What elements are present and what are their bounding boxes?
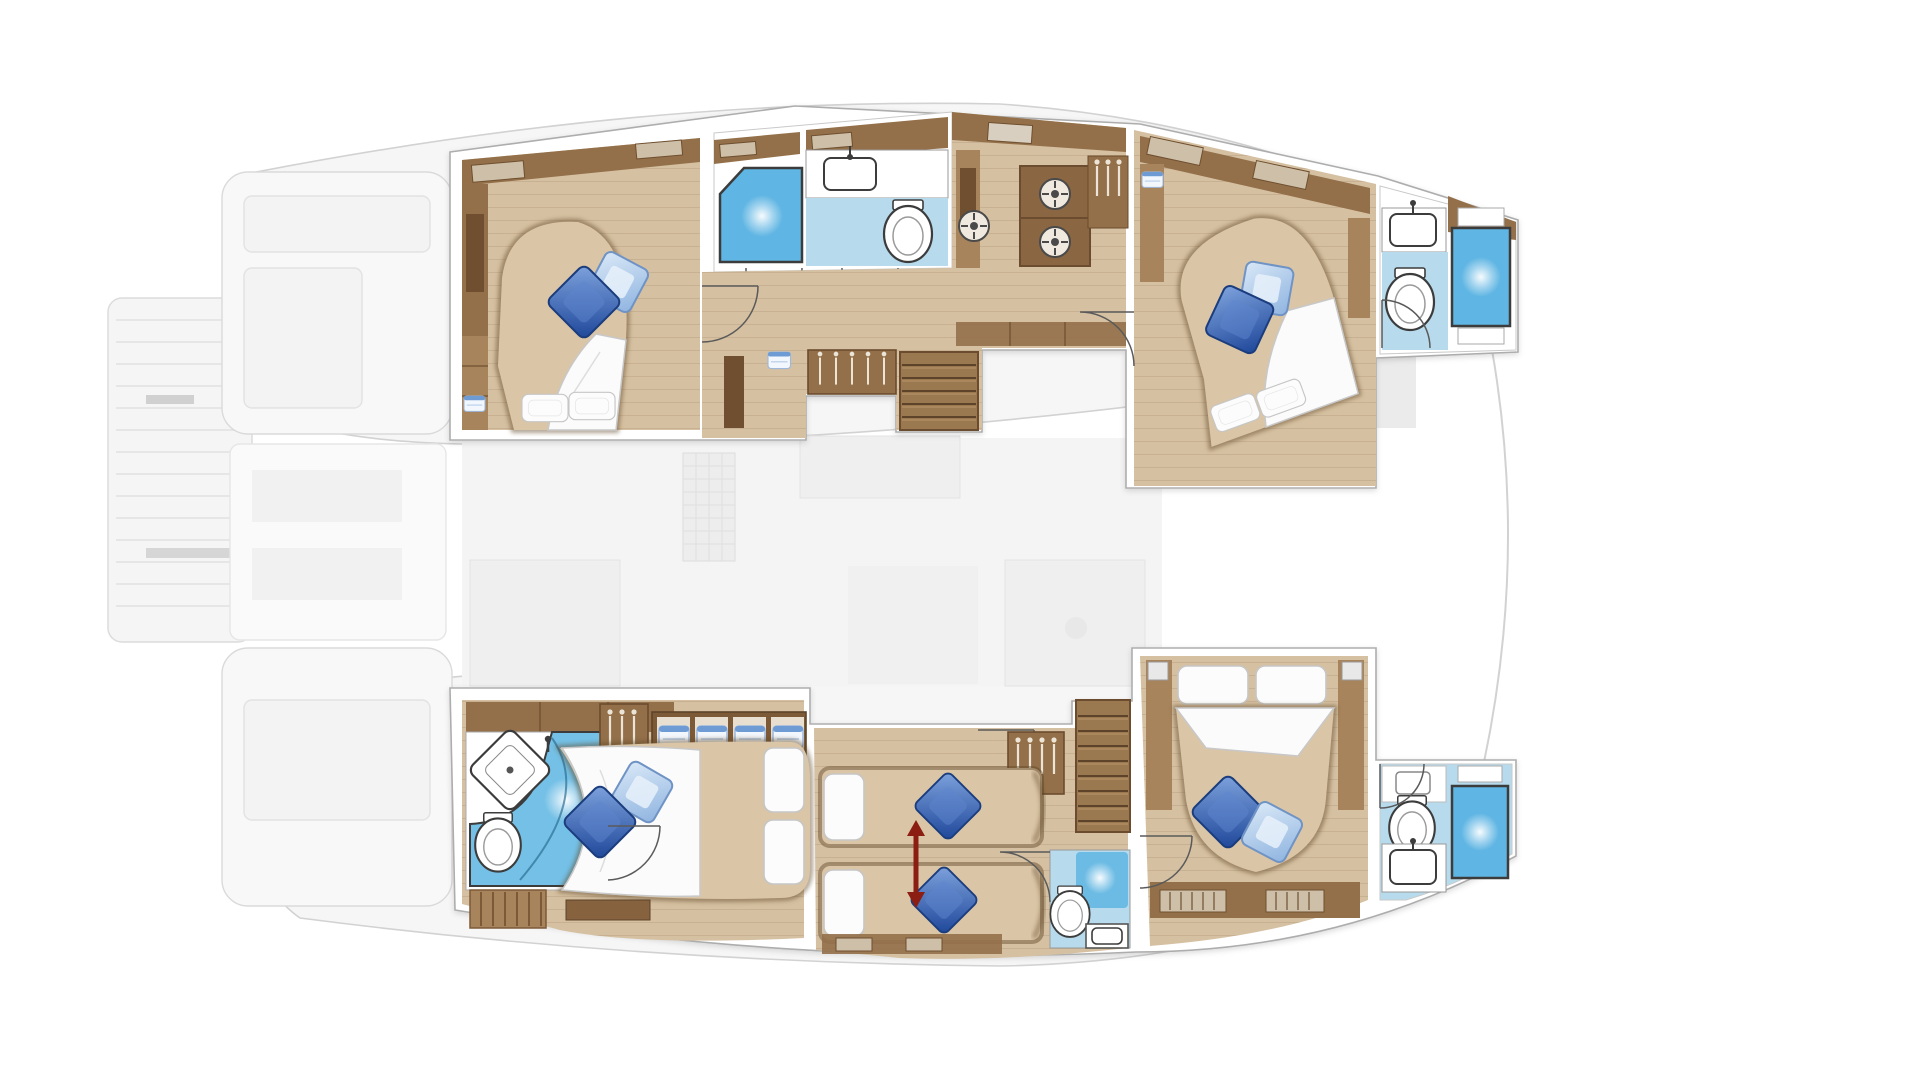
round-appliance xyxy=(1040,179,1070,209)
shower-curb xyxy=(1458,328,1504,344)
washbasin xyxy=(824,158,876,190)
shower-curb xyxy=(1458,208,1504,226)
hand-towel xyxy=(464,396,485,411)
ghost-aft-deck xyxy=(222,172,452,906)
speaker-box xyxy=(1342,662,1362,680)
floor-plan-page xyxy=(0,0,1920,1080)
washbasin xyxy=(1390,214,1436,246)
room-bottom-fwd-cabin xyxy=(1140,656,1368,946)
cockpit-grate-table xyxy=(683,453,735,561)
white-pillow xyxy=(764,820,804,884)
floor-plan-canvas xyxy=(0,0,1920,1080)
washbasin xyxy=(1390,850,1436,884)
side-column xyxy=(1146,660,1172,810)
teak-shower-mat xyxy=(470,890,546,928)
shower-curb xyxy=(1458,766,1502,782)
hanging-lockers-aft xyxy=(808,350,896,394)
towel xyxy=(1142,172,1163,187)
white-pillow xyxy=(1178,666,1248,704)
round-appliance xyxy=(959,211,989,241)
companionway-stairs-top xyxy=(900,352,978,430)
room-top-aft-cabin xyxy=(462,138,700,430)
towel-rail xyxy=(768,352,791,369)
corridor-post xyxy=(724,356,744,428)
side-column xyxy=(1338,660,1364,810)
white-pillow xyxy=(522,394,568,421)
single-bed-lower xyxy=(820,864,1043,942)
round-appliance xyxy=(1040,227,1070,257)
right-cabinet-column xyxy=(1348,218,1370,318)
single-bed-upper xyxy=(820,768,1043,846)
companionway-stairs-bottom xyxy=(1076,700,1130,832)
white-pillow xyxy=(764,748,804,812)
room-bottom-aft-cabin xyxy=(462,700,810,941)
under-bed-drawer xyxy=(566,900,650,920)
room-bottom-fwd-bathroom xyxy=(1380,764,1512,900)
lower-cabinet-band xyxy=(956,322,1126,346)
drawer-stack xyxy=(462,336,488,430)
white-pillow xyxy=(569,392,615,419)
white-pillow xyxy=(824,870,864,936)
storage-band xyxy=(822,934,1002,954)
double-bed xyxy=(560,742,810,899)
speaker-box xyxy=(1148,662,1168,680)
white-pillow xyxy=(1256,666,1326,704)
storage-band xyxy=(1150,882,1360,918)
room-top-fwd-bathroom xyxy=(1380,186,1516,354)
ghost-saloon xyxy=(462,436,1162,686)
white-pillow xyxy=(824,774,864,840)
shower-drain-glow xyxy=(741,195,783,237)
cabinet-door xyxy=(466,214,484,292)
